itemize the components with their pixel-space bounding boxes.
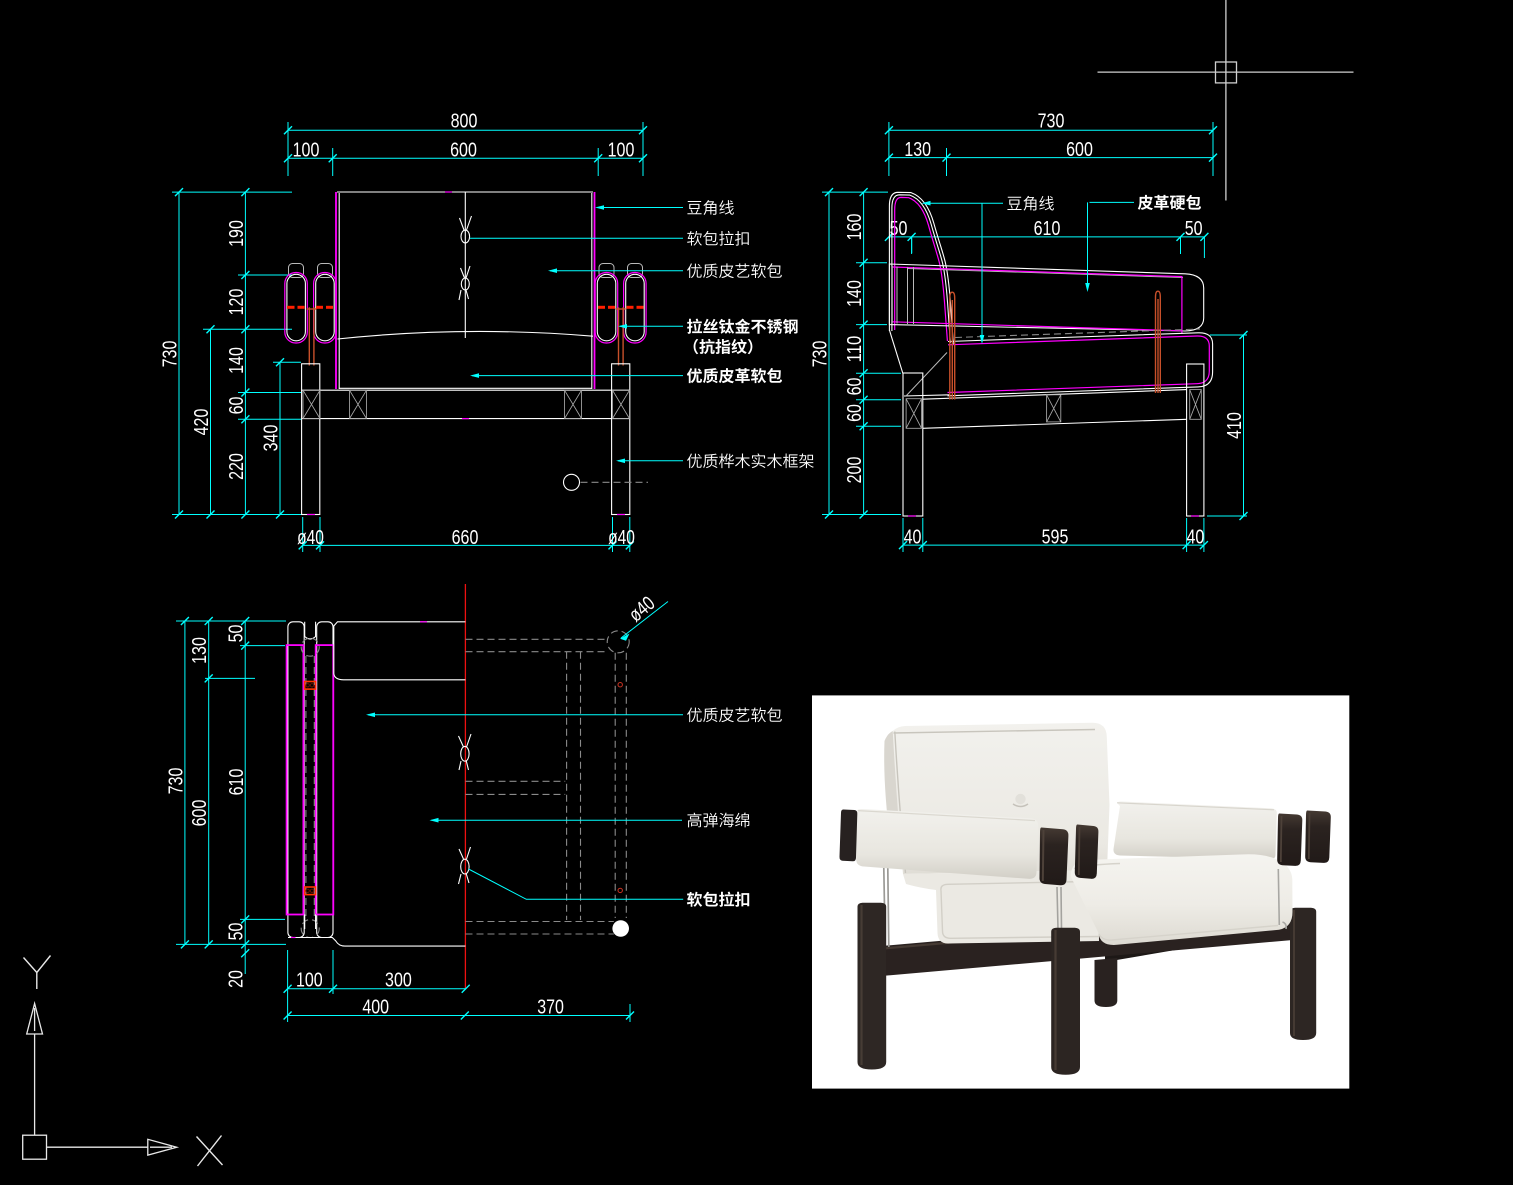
svg-text:130: 130	[189, 637, 211, 664]
svg-text:60: 60	[226, 397, 248, 415]
svg-text:400: 400	[362, 996, 389, 1018]
svg-text:300: 300	[385, 970, 412, 992]
svg-text:50: 50	[226, 923, 248, 941]
svg-text:660: 660	[452, 527, 479, 549]
svg-text:140: 140	[844, 280, 866, 307]
svg-text:340: 340	[261, 425, 283, 452]
svg-text:730: 730	[160, 341, 182, 368]
svg-text:100: 100	[293, 140, 320, 162]
svg-text:50: 50	[226, 625, 248, 643]
svg-text:190: 190	[226, 220, 248, 247]
svg-text:610: 610	[226, 769, 248, 796]
svg-text:100: 100	[296, 970, 323, 992]
svg-text:ø40: ø40	[297, 527, 324, 549]
svg-text:50: 50	[1185, 218, 1203, 240]
svg-text:730: 730	[1038, 111, 1065, 133]
svg-text:800: 800	[451, 111, 478, 133]
svg-text:600: 600	[1066, 139, 1093, 161]
svg-text:130: 130	[904, 139, 931, 161]
svg-text:110: 110	[844, 336, 866, 363]
svg-text:160: 160	[844, 214, 866, 241]
svg-text:595: 595	[1042, 527, 1069, 549]
svg-text:410: 410	[1224, 412, 1246, 439]
svg-text:40: 40	[1187, 527, 1205, 549]
svg-text:100: 100	[608, 140, 635, 162]
svg-text:370: 370	[537, 996, 564, 1018]
svg-text:220: 220	[226, 453, 248, 480]
svg-text:120: 120	[226, 289, 248, 316]
svg-text:730: 730	[165, 768, 187, 795]
svg-text:420: 420	[191, 409, 213, 436]
svg-text:ø40: ø40	[608, 527, 635, 549]
svg-text:610: 610	[1034, 218, 1061, 240]
svg-text:600: 600	[450, 140, 477, 162]
svg-text:60: 60	[844, 378, 866, 396]
svg-text:20: 20	[226, 970, 248, 988]
svg-text:730: 730	[810, 341, 832, 368]
svg-text:60: 60	[844, 404, 866, 422]
svg-text:600: 600	[189, 800, 211, 827]
svg-text:140: 140	[226, 347, 248, 374]
svg-text:40: 40	[904, 527, 922, 549]
svg-text:200: 200	[844, 457, 866, 484]
